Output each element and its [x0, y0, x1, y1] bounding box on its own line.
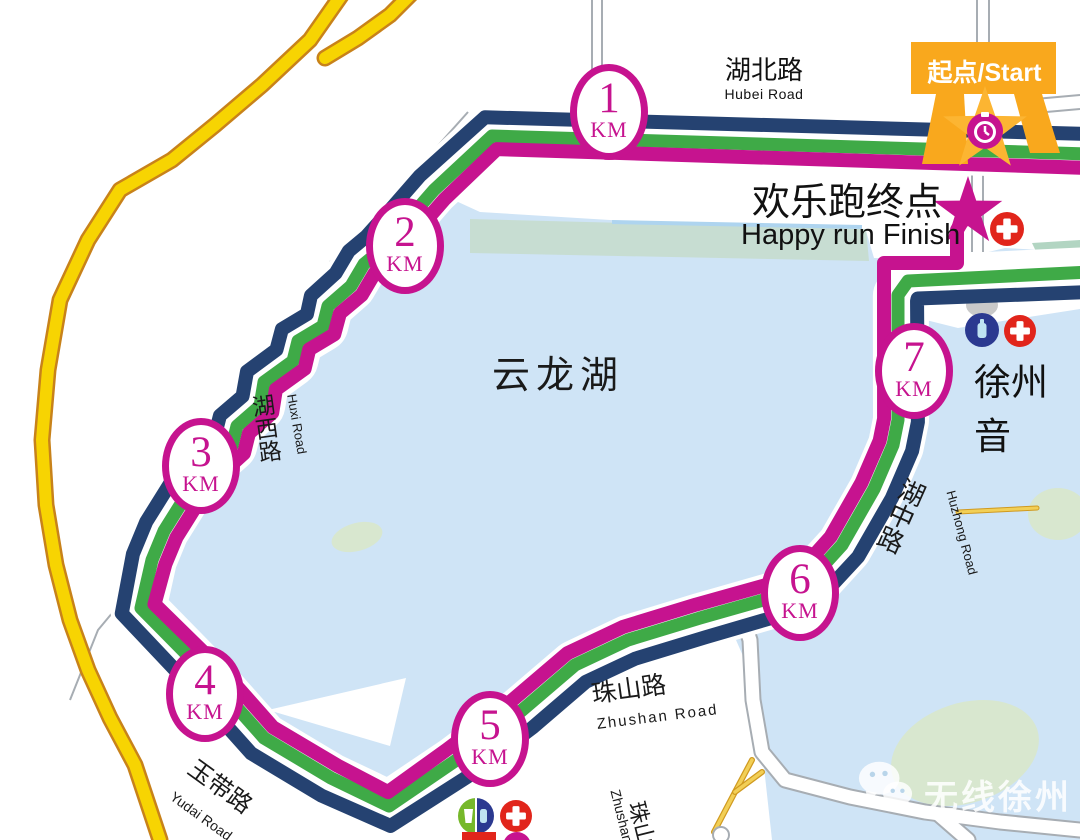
- map-canvas: [0, 0, 1080, 840]
- watermark: 无线徐州: [856, 758, 1072, 819]
- bottle-glyph-2: [480, 809, 487, 823]
- happy-run-finish-label-en: Happy run Finish: [741, 219, 960, 252]
- stopwatch-crown: [981, 112, 989, 117]
- drink-station-divider: [475, 798, 477, 834]
- km-marker-value: 2: [394, 215, 416, 252]
- yellow-lane-a: [714, 760, 752, 832]
- road-end-circle: [713, 827, 729, 840]
- partial-icon-red: [462, 832, 496, 840]
- bottle-glyph: [978, 323, 987, 338]
- km-marker-6: 6KM: [761, 545, 839, 641]
- km-marker-4: 4KM: [166, 646, 244, 742]
- hubei-road-label-cn: 湖北路: [706, 57, 822, 84]
- wechat-icon: [856, 758, 914, 812]
- km-marker-unit: KM: [186, 699, 223, 725]
- cross-v: [512, 806, 519, 826]
- km-marker-value: 3: [190, 435, 212, 472]
- hubei-road-label-en: Hubei Road: [706, 87, 822, 102]
- cross-v: [1003, 218, 1010, 239]
- km-marker-unit: KM: [182, 471, 219, 497]
- km-marker-value: 5: [479, 708, 501, 745]
- cross-v: [1016, 321, 1023, 341]
- route-map: 起点/Start 湖北路 Hubei Road 欢乐跑终点 Happy run …: [0, 0, 1080, 840]
- km-marker-2: 2KM: [366, 198, 444, 294]
- km-marker-unit: KM: [386, 251, 423, 277]
- km-marker-value: 4: [194, 663, 216, 700]
- km-marker-3: 3KM: [162, 418, 240, 514]
- music-hall-label: 徐州音: [974, 352, 1080, 460]
- km-marker-1: 1KM: [570, 64, 648, 160]
- km-marker-unit: KM: [471, 744, 508, 770]
- km-marker-unit: KM: [781, 598, 818, 624]
- lake-name-label: 云龙湖: [492, 344, 624, 399]
- km-marker-7: 7KM: [875, 323, 953, 419]
- start-gate-label: 起点/Start: [913, 53, 1056, 89]
- km-marker-value: 1: [598, 81, 620, 118]
- watermark-text: 无线徐州: [924, 770, 1072, 819]
- km-marker-unit: KM: [895, 376, 932, 402]
- happy-run-finish-label-cn: 欢乐跑终点: [752, 171, 942, 226]
- bottle-neck: [980, 319, 984, 324]
- km-marker-value: 6: [789, 562, 811, 599]
- partial-icon-magenta: [503, 832, 531, 840]
- km-marker-5: 5KM: [451, 691, 529, 787]
- cup-glyph: [464, 809, 473, 823]
- km-marker-unit: KM: [590, 117, 627, 143]
- km-marker-value: 7: [903, 340, 925, 377]
